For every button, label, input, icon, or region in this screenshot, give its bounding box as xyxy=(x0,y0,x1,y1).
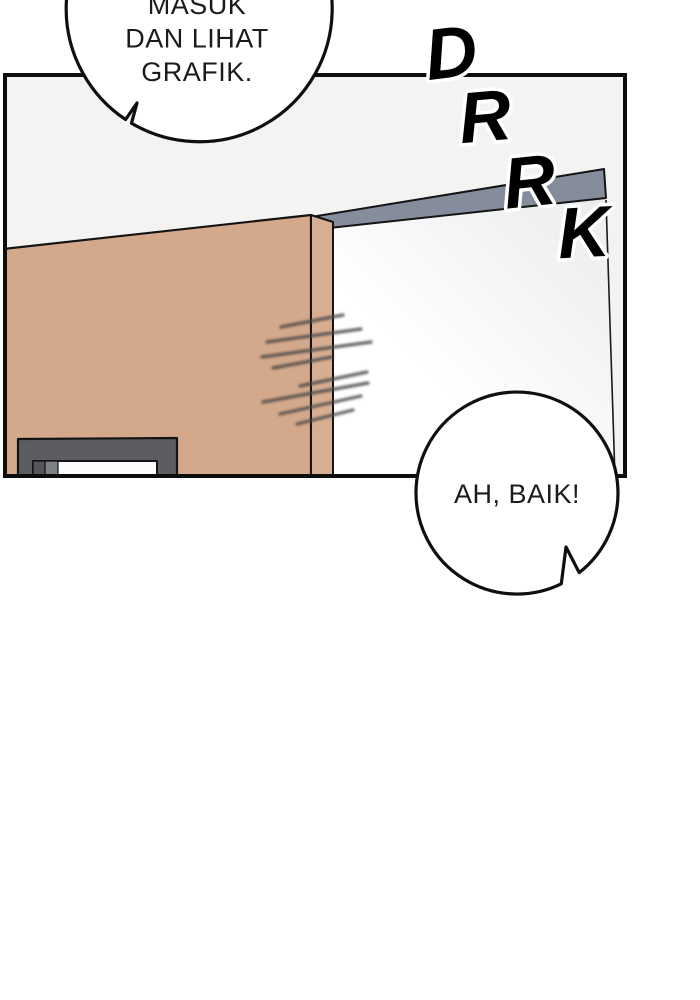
comic-page: MASUK DAN LIHAT GRAFIK. AH, BAIK! D R R … xyxy=(0,0,700,1000)
comic-panel-art: MASUK DAN LIHAT GRAFIK. AH, BAIK! D R R … xyxy=(0,0,700,1000)
speech-bubble-top-line2: DAN LIHAT xyxy=(125,24,269,54)
speech-bubble-top-line3: GRAFIK. xyxy=(141,57,253,87)
speech-bubble-top-line1: MASUK xyxy=(148,0,247,20)
door-window xyxy=(18,438,177,478)
sfx-letter-k: K xyxy=(556,191,617,274)
sfx-letter-r2: R xyxy=(499,140,559,225)
speech-bubble-bottom-text: AH, BAIK! xyxy=(454,479,580,509)
speech-bubble-bottom: AH, BAIK! xyxy=(416,392,618,594)
